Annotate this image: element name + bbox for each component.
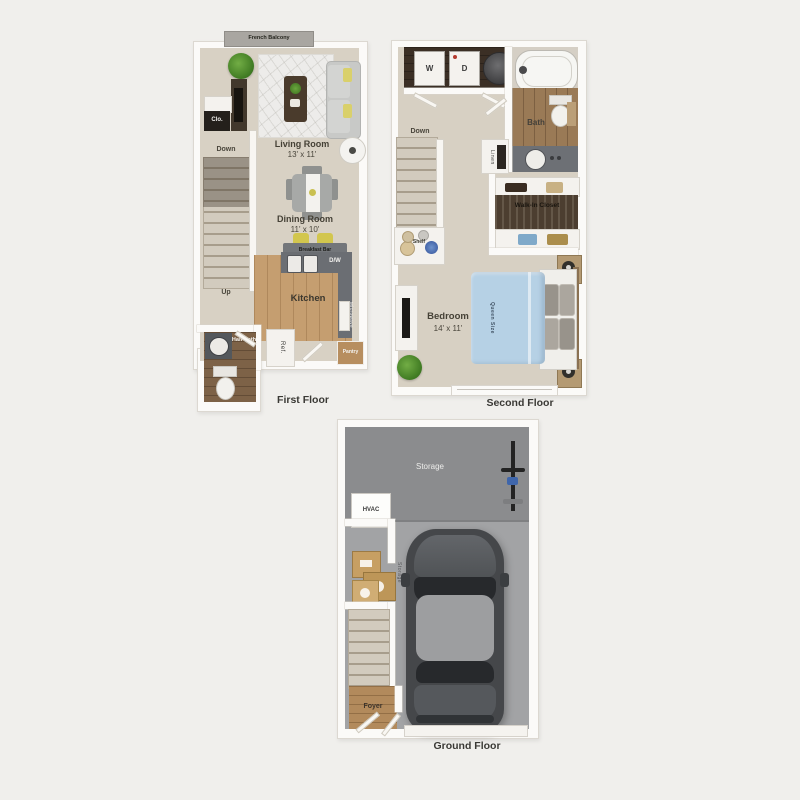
shelf-basket [546, 182, 563, 193]
foyer-label: Foyer [353, 703, 393, 711]
closet-bottom-wall [489, 248, 578, 255]
pantry-label: Pantry [338, 350, 363, 356]
shelf-box-dark [505, 183, 527, 192]
car-mirror-right [500, 573, 509, 587]
staircase-ground-floor [348, 609, 390, 689]
closet-label: Clo. [204, 117, 230, 124]
hvac-label: HVAC [352, 507, 390, 514]
storage-area-label: Storage [385, 462, 475, 471]
stairs-down-label: Down [200, 146, 252, 154]
french-balcony-label: French Balcony [225, 35, 313, 41]
box-3-label-sticker [360, 588, 370, 598]
linen-items [497, 145, 506, 169]
dishwasher-label: D/W [320, 258, 350, 265]
washer-label: W [415, 64, 444, 73]
dryer-label: D [450, 64, 479, 73]
bed-pillow-2 [559, 284, 575, 316]
floor-divider-line [395, 520, 529, 522]
walk-in-closet-floor: Walk-In Closet [495, 195, 578, 229]
car-hood [414, 535, 496, 577]
washer: W [414, 51, 445, 86]
stairs-down-label-second: Down [398, 128, 442, 136]
bed-pillow-3 [543, 318, 559, 350]
vanity-sink [525, 149, 546, 170]
ground-floor-caption: Ground Floor [407, 740, 527, 752]
stair-rail-second [436, 139, 444, 231]
window-glass-line [457, 389, 552, 390]
tv-icon [234, 88, 243, 122]
first-floor-caption: First Floor [243, 394, 363, 406]
car-mirror-left [401, 573, 410, 587]
bath-side-table [567, 102, 576, 126]
bedroom-window [451, 385, 558, 396]
closet-bottom-shelf [495, 229, 580, 250]
tub-faucet [519, 66, 527, 74]
sofa-pillow-top [343, 68, 352, 82]
shelf-box-blue [518, 234, 537, 245]
staircase-dark-lower-run [203, 157, 249, 207]
closet-box: Clo. [204, 111, 230, 131]
linen-label: Linen [485, 144, 494, 170]
bike-hook [503, 499, 523, 504]
floorplan-canvas: French Balcony Clo. Living Room 13' x 11… [0, 0, 800, 800]
car-rear-window [416, 661, 494, 683]
bed-pillow-4 [559, 318, 575, 350]
half-bath-vanity [205, 333, 232, 359]
half-bath-top-wall [197, 325, 259, 332]
dining-room-label: Dining Room [261, 214, 349, 224]
closet-top-shelf [495, 177, 580, 197]
stairs-up-label: Up [200, 289, 252, 297]
shelf-box-gold [547, 234, 568, 245]
shelf-label: Shelf [407, 240, 431, 246]
refrigerator-label: Ref. [277, 335, 285, 361]
bed-pillow-1 [543, 284, 559, 316]
bike-seat [507, 477, 518, 485]
bedroom-dresser [395, 285, 418, 351]
refrigerator: Ref. [266, 329, 295, 367]
dryer-knob [453, 55, 457, 59]
bathtub [515, 50, 578, 93]
living-room-label: Living Room [258, 139, 346, 149]
toilet-tank-first-floor [213, 366, 237, 377]
second-floor-caption: Second Floor [459, 397, 581, 409]
media-console [231, 79, 247, 131]
half-bath-sink [209, 337, 229, 356]
garage-door [404, 725, 528, 737]
car-roof [416, 595, 494, 661]
queen-size-label: Queen Size [484, 296, 494, 340]
bath-vanity [512, 146, 578, 172]
sink-basin-left [287, 255, 302, 273]
bath-label: Bath [514, 118, 558, 127]
vanity-dot-2 [557, 156, 561, 160]
living-room-dimensions: 13' x 11' [258, 150, 346, 159]
sink-counter: D/W [281, 252, 352, 273]
car-taillight-strip [416, 715, 494, 723]
table-plant [290, 83, 301, 94]
dryer: D [449, 51, 480, 86]
linen-closet: Linen [481, 139, 509, 174]
vanity-dot-1 [550, 156, 554, 160]
storage-boxes-label: Storage [393, 552, 401, 594]
sink-basin-right [303, 255, 318, 273]
foyer-right-wall [395, 686, 402, 712]
walk-in-closet-label: Walk-In Closet [503, 202, 571, 209]
pantry: Pantry [337, 341, 364, 365]
plant-bedroom [397, 355, 422, 380]
car [406, 529, 504, 731]
kitchen-label: Kitchen [266, 294, 350, 305]
coffee-table [284, 76, 307, 122]
dining-table [292, 174, 332, 212]
plant-living-room [228, 53, 254, 79]
box-1-label-sticker [360, 560, 372, 567]
bed-duvet: Queen Size [471, 272, 545, 364]
fan-icon [349, 147, 356, 154]
sofa [326, 61, 361, 139]
table-tray [290, 99, 300, 107]
bathtub-basin [522, 56, 572, 87]
shelf-nook: Shelf [394, 227, 445, 265]
bedroom-tv-icon [402, 298, 410, 338]
staircase-second-floor [396, 137, 438, 231]
table-centerpiece [309, 189, 316, 196]
duvet-fold-line [528, 272, 531, 364]
toilet-bowl-first-floor [216, 377, 235, 400]
bike-handlebar [501, 468, 525, 472]
laundry-bottom-wall [404, 88, 512, 94]
sofa-pillow-bottom [343, 104, 352, 118]
french-balcony: French Balcony [224, 31, 314, 47]
